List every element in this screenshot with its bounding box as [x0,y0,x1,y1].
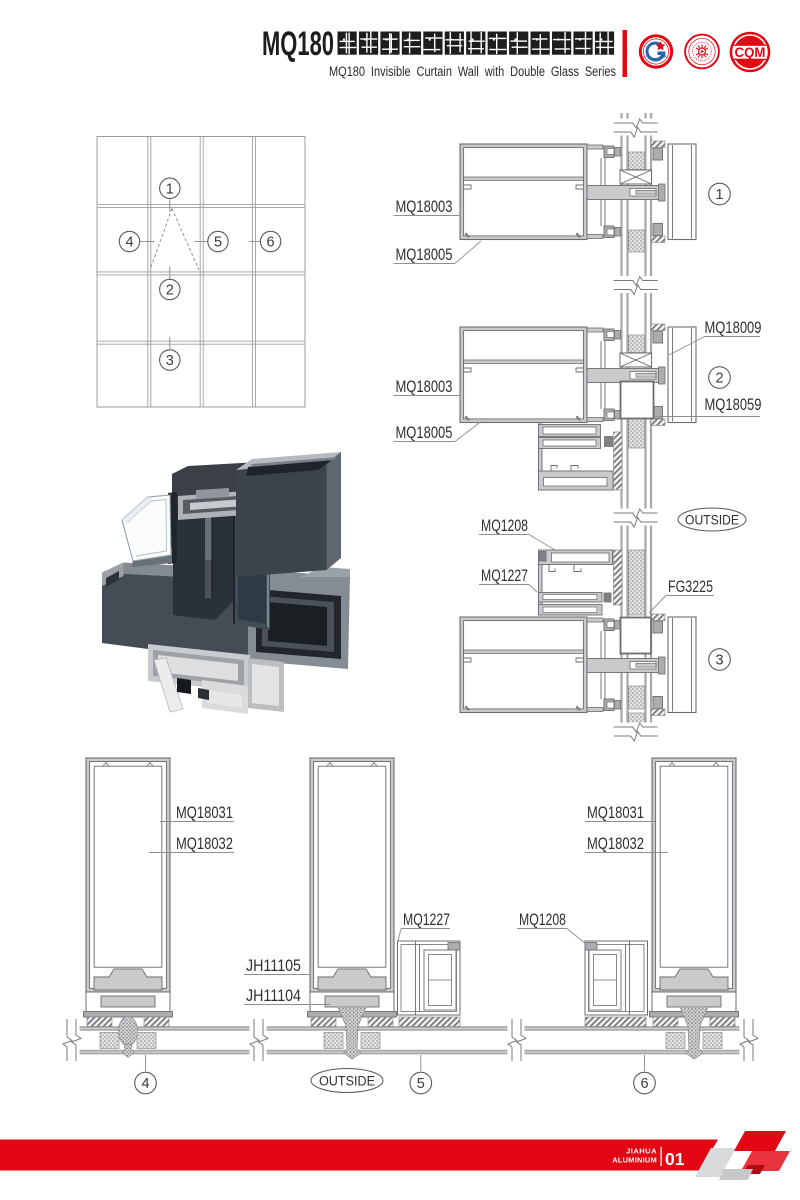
svg-text:3: 3 [715,653,723,669]
svg-text:MQ18032: MQ18032 [176,835,233,853]
svg-text:6: 6 [267,235,275,251]
svg-text:MQ180: MQ180 [262,25,334,63]
svg-text:JH11104: JH11104 [246,987,301,1005]
svg-text:MQ18032: MQ18032 [587,835,644,853]
svg-text:01: 01 [665,1149,685,1169]
svg-text:MQ18003: MQ18003 [396,378,453,396]
svg-text:5: 5 [214,235,222,251]
svg-text:5: 5 [417,1076,425,1092]
svg-text:MQ1227: MQ1227 [481,567,528,585]
svg-text:MQ18059: MQ18059 [705,396,762,414]
svg-text:CQM: CQM [735,45,766,60]
svg-text:1: 1 [166,181,174,197]
svg-text:6: 6 [640,1076,648,1092]
svg-text:MQ18005: MQ18005 [396,246,453,264]
svg-text:B: B [661,53,666,60]
svg-text:MQ1208: MQ1208 [519,911,566,929]
svg-text:OUTSIDE: OUTSIDE [685,513,739,528]
svg-text:JH11105: JH11105 [246,957,301,975]
svg-text:FG3225: FG3225 [668,578,713,596]
svg-text:2: 2 [166,283,174,299]
svg-text:4: 4 [125,235,133,251]
svg-text:ALUMINIUM: ALUMINIUM [612,1156,657,1165]
svg-text:2: 2 [715,371,723,387]
svg-text:3: 3 [166,353,174,369]
svg-text:MQ1208: MQ1208 [481,517,528,535]
svg-text:MQ18003: MQ18003 [396,198,453,216]
svg-text:OUTSIDE: OUTSIDE [319,1074,375,1089]
svg-text:JIAHUA: JIAHUA [626,1147,657,1156]
svg-text:MQ18031: MQ18031 [587,804,644,822]
svg-text:1: 1 [715,187,723,203]
svg-text:MQ18005: MQ18005 [396,424,453,442]
svg-text:4: 4 [141,1076,149,1092]
svg-text:MQ18031: MQ18031 [176,804,233,822]
svg-text:MQ1227: MQ1227 [403,911,450,929]
svg-text:MQ180 Invisible Curtain Wall w: MQ180 Invisible Curtain Wall with Double… [329,64,616,79]
svg-text:MQ18009: MQ18009 [705,319,762,337]
